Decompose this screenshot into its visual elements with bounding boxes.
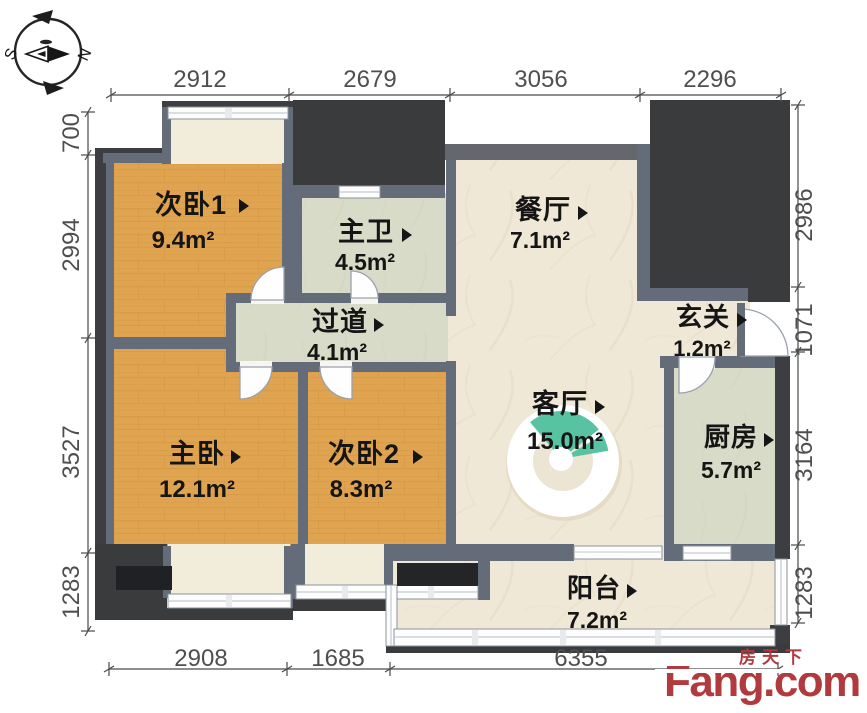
svg-text:客厅: 客厅 [532,388,588,419]
svg-text:房天下: 房天下 [739,647,808,667]
svg-text:1071: 1071 [791,303,818,356]
svg-text:3056: 3056 [514,66,567,93]
svg-text:1.2m²: 1.2m² [673,336,730,361]
svg-text:厨房: 厨房 [704,422,758,452]
svg-text:9.4m²: 9.4m² [152,227,215,254]
svg-text:1283: 1283 [58,565,85,618]
svg-text:2986: 2986 [791,188,818,241]
svg-text:2296: 2296 [683,66,736,93]
svg-text:8.3m²: 8.3m² [330,476,393,503]
svg-text:12.1m²: 12.1m² [159,476,235,503]
svg-text:2908: 2908 [174,645,227,672]
svg-text:次卧2: 次卧2 [328,439,400,469]
svg-text:700: 700 [58,113,85,153]
svg-text:玄关: 玄关 [676,302,730,332]
svg-text:1685: 1685 [311,645,364,672]
svg-text:过道: 过道 [312,306,368,337]
svg-text:主卧: 主卧 [169,439,225,469]
svg-text:次卧1: 次卧1 [155,190,227,220]
svg-text:2994: 2994 [58,218,85,271]
svg-text:主卫: 主卫 [338,217,394,247]
svg-text:1283: 1283 [791,566,818,619]
svg-text:7.2m²: 7.2m² [567,607,627,633]
svg-text:5.7m²: 5.7m² [701,457,761,483]
svg-text:阳台: 阳台 [567,573,621,603]
svg-text:2912: 2912 [173,66,226,93]
svg-text:餐厅: 餐厅 [515,195,571,225]
svg-text:3527: 3527 [58,425,85,478]
svg-text:4.1m²: 4.1m² [307,339,367,365]
svg-text:4.5m²: 4.5m² [335,249,395,275]
svg-text:7.1m²: 7.1m² [510,227,570,253]
svg-text:6355: 6355 [554,645,607,672]
svg-text:3164: 3164 [791,428,818,481]
svg-text:15.0m²: 15.0m² [527,428,603,455]
svg-text:2679: 2679 [343,66,396,93]
